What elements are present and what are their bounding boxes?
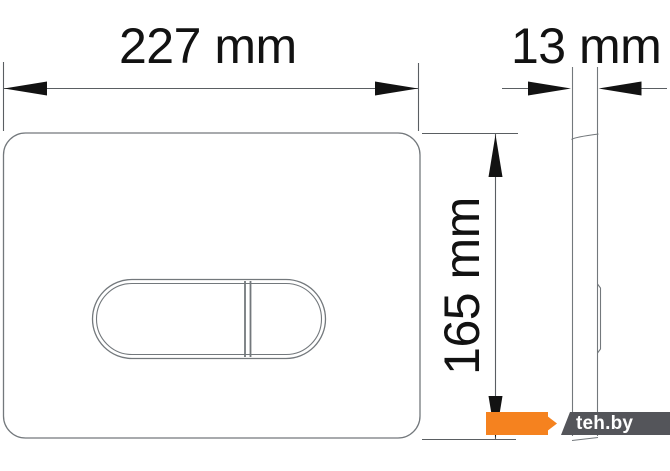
button-inner-ring bbox=[97, 284, 322, 355]
watermark-brand-label: teh.by bbox=[576, 412, 633, 435]
arrowhead-left-icon bbox=[4, 82, 47, 96]
watermark-logo-mark bbox=[486, 412, 548, 435]
depth-dimension bbox=[502, 82, 667, 96]
width-dimension-label: 227 mm bbox=[119, 21, 297, 71]
height-dimension-label: 165 mm bbox=[437, 196, 487, 376]
arrowhead-up-icon bbox=[489, 135, 503, 178]
flush-button bbox=[93, 280, 326, 359]
button-outer-ring bbox=[93, 280, 326, 359]
watermark-label-bar: teh.by bbox=[560, 412, 670, 435]
side-view-top-edge bbox=[572, 134, 599, 140]
arrowhead-right-icon bbox=[375, 82, 418, 96]
plate-outline bbox=[4, 133, 421, 438]
side-view bbox=[572, 67, 601, 441]
watermark: teh.by bbox=[486, 412, 670, 435]
depth-dimension-label: 13 mm bbox=[511, 21, 661, 71]
side-view-bottom-edge bbox=[572, 438, 598, 441]
technical-drawing-canvas: 227 mm 13 mm 165 mm teh.by bbox=[0, 0, 670, 471]
arrowhead-left-icon bbox=[599, 82, 642, 96]
front-view bbox=[4, 133, 421, 438]
arrowhead-right-icon bbox=[528, 82, 571, 96]
